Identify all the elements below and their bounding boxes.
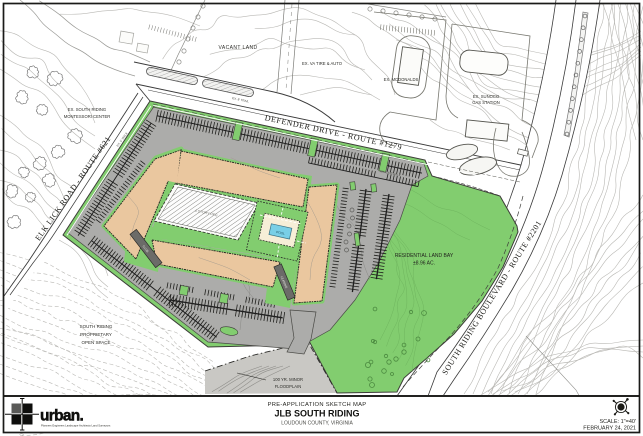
svg-text:SCALE: 1"=40': SCALE: 1"=40' bbox=[600, 419, 636, 425]
svg-text:EX. SOUTH RIDING: EX. SOUTH RIDING bbox=[68, 107, 106, 112]
svg-text:PRE-APPLICATION SKETCH MAP: PRE-APPLICATION SKETCH MAP bbox=[268, 402, 367, 408]
svg-text:JLB SOUTH RIDING: JLB SOUTH RIDING bbox=[274, 409, 359, 419]
svg-text:EX. VA TIRE & AUTO: EX. VA TIRE & AUTO bbox=[302, 61, 343, 66]
svg-text:SOUTH RIDING: SOUTH RIDING bbox=[80, 324, 113, 329]
svg-text:VACANT LAND: VACANT LAND bbox=[219, 45, 258, 51]
svg-text:OPEN SPACE: OPEN SPACE bbox=[82, 340, 111, 345]
svg-text:100 YR. MINOR: 100 YR. MINOR bbox=[273, 377, 303, 382]
svg-text:GAS STATION: GAS STATION bbox=[472, 100, 500, 105]
svg-text:MONTESSORI CENTER: MONTESSORI CENTER bbox=[64, 114, 111, 119]
svg-text:EX. SUNOCO: EX. SUNOCO bbox=[473, 94, 500, 99]
svg-text:PROPRIETARY: PROPRIETARY bbox=[80, 332, 112, 337]
svg-text:FLOODPLAIN: FLOODPLAIN bbox=[275, 384, 302, 389]
svg-text:±8.96 AC.: ±8.96 AC. bbox=[413, 261, 435, 267]
svg-text:EX. MCDONALDS: EX. MCDONALDS bbox=[384, 77, 419, 82]
svg-text:FEBRUARY 24, 2021: FEBRUARY 24, 2021 bbox=[583, 426, 636, 432]
svg-text:LOUDOUN COUNTY, VIRGINIA: LOUDOUN COUNTY, VIRGINIA bbox=[281, 421, 353, 427]
svg-text:RESIDENTIAL LAND BAY: RESIDENTIAL LAND BAY bbox=[395, 253, 454, 259]
svg-text:Planners Engineers Landscape: Planners Engineers Landscape Architects … bbox=[41, 424, 111, 428]
svg-text:urban.: urban. bbox=[40, 408, 84, 425]
